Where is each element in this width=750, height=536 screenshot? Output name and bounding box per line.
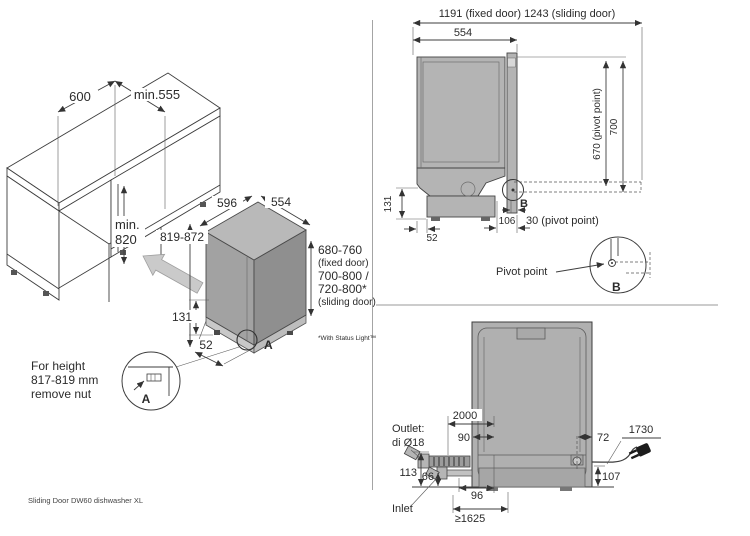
corner-marker-label: A xyxy=(264,338,273,352)
detail-a-label: A xyxy=(142,392,151,406)
door-sliding-value-2: 720-800* xyxy=(318,282,367,296)
side-foot xyxy=(431,217,440,221)
dim-inlet-offset: 96 xyxy=(471,490,483,502)
dim-top-height: 700 xyxy=(609,118,620,135)
note-line1: For height xyxy=(31,359,86,373)
dim-unit-depth: 554 xyxy=(271,195,291,209)
dim-side-base-height: 131 xyxy=(383,195,394,212)
outlet-label-1: Outlet: xyxy=(392,423,424,435)
door-sliding-value-1: 700-800 / xyxy=(318,269,369,283)
side-foot xyxy=(481,217,490,221)
cabinet-foot xyxy=(11,270,17,275)
dim-inlet-height: 66 xyxy=(422,471,434,483)
cabinet-foot xyxy=(43,291,49,296)
power-cord xyxy=(592,447,637,462)
dim-hose-min-length: ≥1625 xyxy=(455,513,486,525)
cabinet-foot xyxy=(120,250,126,255)
dim-overall-width: 1191 (fixed door) 1243 (sliding door) xyxy=(439,8,616,20)
pivot-point-label: Pivot point xyxy=(496,266,547,278)
rear-view: 1730 2000 90 72 113 66 96 107 ≥1625 Outl… xyxy=(392,322,661,525)
dim-unit-base-height: 131 xyxy=(172,310,192,324)
dim-outlet-height: 113 xyxy=(399,467,417,479)
diagram-canvas: 600 min.555 min. 820 596 554 819-872 131 xyxy=(0,0,750,531)
dim-niche-width: 600 xyxy=(69,89,91,104)
pivot-detail-callout: B Pivot point xyxy=(496,237,650,294)
dim-niche-height-1: min. xyxy=(115,217,140,232)
dim-niche-height-2: 820 xyxy=(115,232,137,247)
dim-pivot-height: 670 (pivot point) xyxy=(592,88,603,160)
niche-isometric-view: 600 min.555 min. 820 xyxy=(7,73,220,302)
dim-niche-depth: min.555 xyxy=(134,87,180,102)
outlet-hose-icon xyxy=(404,446,470,468)
side-base xyxy=(427,196,495,217)
side-body xyxy=(417,57,505,168)
dim-unit-width: 596 xyxy=(217,196,237,210)
pivot-detail-label: B xyxy=(612,280,621,294)
insert-arrow-icon xyxy=(143,254,203,293)
side-view: 1191 (fixed door) 1243 (sliding door) 55… xyxy=(383,8,642,244)
dim-pivot-offset: 30 (pivot point) xyxy=(526,215,599,227)
dim-drain-offset-left: 90 xyxy=(458,432,470,444)
unit-foot xyxy=(287,331,293,335)
side-detail-label: B xyxy=(520,198,528,210)
side-body-mid xyxy=(417,168,505,196)
plug-icon xyxy=(628,443,651,461)
dim-drain-offset-right: 72 xyxy=(597,432,609,444)
door-sliding-note: (sliding door) xyxy=(318,297,376,308)
status-light-footnote: *With Status Light™ xyxy=(318,335,376,342)
inlet-label: Inlet xyxy=(392,503,413,515)
unit-foot xyxy=(214,330,220,335)
outlet-label-2: di Ø18 xyxy=(392,437,424,449)
note-line3: remove nut xyxy=(31,387,92,401)
dim-drain-hose-length: 2000 xyxy=(453,410,477,422)
diagram-caption: Sliding Door DW60 dishwasher XL xyxy=(28,496,143,505)
installation-diagram-page: 600 min.555 min. 820 596 554 819-872 131 xyxy=(0,0,750,531)
dim-base-front-offset: 106 xyxy=(499,216,516,227)
door-handle xyxy=(508,58,516,67)
rear-top-notch xyxy=(517,328,545,339)
dim-cord-length: 1730 xyxy=(629,424,653,436)
dim-unit-height: 819-872 xyxy=(160,230,204,244)
note-line2: 817-819 mm xyxy=(31,373,98,387)
cabinet-foot xyxy=(200,202,206,207)
dim-side-depth: 554 xyxy=(454,27,472,39)
nut-icon xyxy=(147,374,161,381)
door-fixed-note: (fixed door) xyxy=(318,258,369,269)
rear-foot xyxy=(560,487,572,491)
door-fixed-value: 680-760 xyxy=(318,243,362,257)
dim-unit-foot-inset: 52 xyxy=(199,338,213,352)
detail-a-callout: A For height 817-819 mm remove nut xyxy=(31,352,180,410)
rear-base xyxy=(479,468,585,487)
dim-back-offset: 52 xyxy=(426,233,438,244)
dim-cord-height: 107 xyxy=(602,471,620,483)
